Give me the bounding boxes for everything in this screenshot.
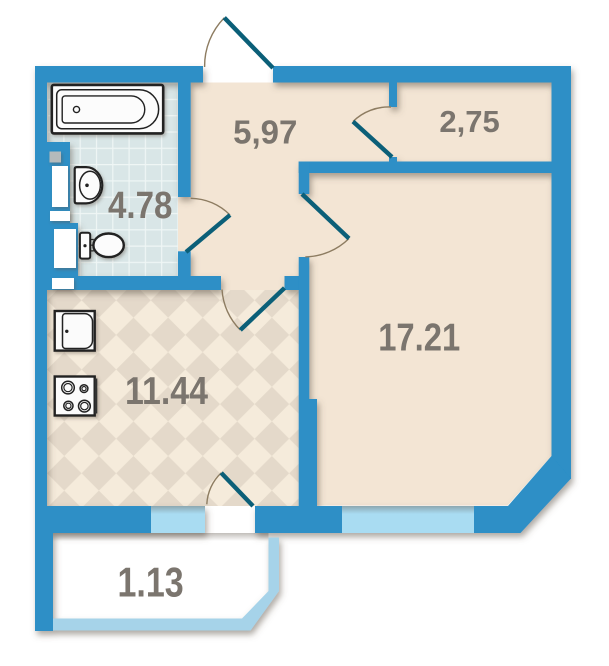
svg-text:2,75: 2,75 <box>439 104 499 139</box>
svg-text:5,97: 5,97 <box>233 114 297 151</box>
svg-text:17.21: 17.21 <box>378 315 460 359</box>
svg-text:11.44: 11.44 <box>125 369 209 413</box>
svg-text:1.13: 1.13 <box>117 560 183 606</box>
svg-text:4.78: 4.78 <box>108 184 172 227</box>
